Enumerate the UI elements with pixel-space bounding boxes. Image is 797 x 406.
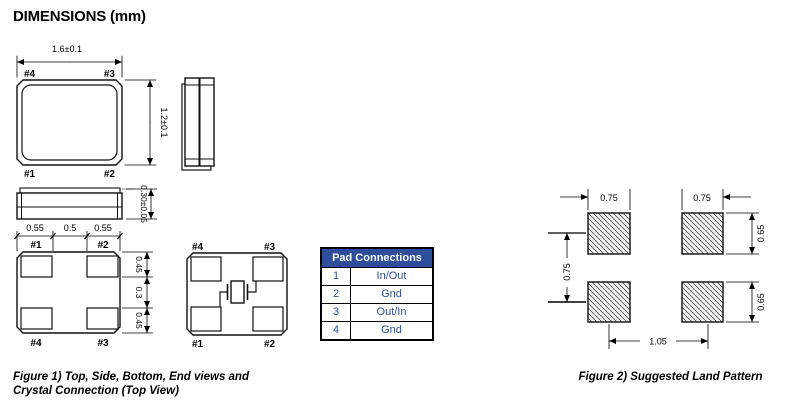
pad-connection-cell: Out/In: [351, 304, 432, 321]
bottom-view-pad2-label: #2: [97, 240, 109, 251]
table-row: 3 Out/In: [322, 303, 432, 321]
top-view-width-dim: 1.6±0.1: [52, 44, 82, 54]
land-pad-bottom-left: [588, 282, 630, 322]
bottom-view-dim-05: 0.5: [64, 223, 77, 233]
figure1-caption-line2: Crystal Connection (Top View): [13, 385, 249, 399]
bottom-view-dim-055-left: 0.55: [26, 223, 44, 233]
pad-connection-cell: Gnd: [351, 322, 432, 339]
land-dim-pad-height-top: 0.65: [756, 225, 766, 243]
bottom-view-pad4-label: #4: [30, 338, 42, 349]
top-view-pad2-label: #2: [104, 169, 116, 180]
figure2-caption: Figure 2) Suggested Land Pattern: [548, 371, 793, 385]
bottom-view-pad1-label: #1: [30, 240, 42, 251]
pad-number-cell: 3: [322, 304, 351, 321]
pad-number-cell: 2: [322, 286, 351, 303]
side-view: 0.30±0.05: [17, 185, 157, 223]
top-view-height-dim: 1.2±0.1: [159, 108, 169, 138]
crystal-view-pad4-label: #4: [192, 242, 204, 253]
pad-number-cell: 4: [322, 322, 351, 339]
pad-number-cell: 1: [322, 268, 351, 285]
land-pad-top-right: [682, 213, 723, 254]
top-view-pad1-label: #1: [24, 169, 36, 180]
land-dim-vertical-pitch: 0.75: [562, 263, 572, 281]
crystal-view-pad1-label: #1: [192, 339, 204, 350]
top-view-pad3-label: #3: [104, 69, 116, 80]
land-dim-horizontal-pitch: 1.05: [649, 337, 667, 347]
pad-connections-table: Pad Connections 1 In/Out 2 Gnd 3 Out/In …: [320, 247, 434, 341]
land-pad-top-left: [588, 213, 630, 254]
figure1-caption-line1: Figure 1) Top, Side, Bottom, End views a…: [13, 371, 249, 385]
crystal-view-pad2-label: #2: [264, 339, 276, 350]
land-pad-bottom-right: [682, 282, 723, 322]
table-row: 1 In/Out: [322, 267, 432, 285]
dimensions-drawing: 1.6±0.1 #4 #3 #1 #2 1.2±0.1: [0, 0, 797, 406]
bottom-view-dim-055-right: 0.55: [94, 223, 112, 233]
land-dim-pad-width-right: 0.75: [693, 193, 711, 203]
bottom-view-dim-045-bottom: 0.45: [134, 312, 144, 329]
land-dim-pad-width-left: 0.75: [600, 193, 618, 203]
land-dim-pad-height-bottom: 0.65: [756, 293, 766, 311]
bottom-view-dim-045-top: 0.45: [134, 256, 144, 273]
bottom-view: 0.55 0.5 0.55 #1 #2 #4 #3: [15, 223, 154, 349]
pad-connection-cell: In/Out: [351, 268, 432, 285]
table-row: 2 Gnd: [322, 285, 432, 303]
side-view-height-dim: 0.30±0.05: [139, 185, 149, 223]
pad-connections-header: Pad Connections: [322, 249, 432, 267]
top-view-pad4-label: #4: [24, 69, 36, 80]
pad-connection-cell: Gnd: [351, 286, 432, 303]
land-pattern: 0.75 0.75 0.65 0.65 0.75: [548, 189, 766, 349]
dimensions-page: DIMENSIONS (mm) 1.6±0.1 #4 #3 #1: [0, 0, 797, 406]
top-view: 1.6±0.1 #4 #3 #1 #2 1.2±0.1: [17, 44, 169, 180]
bottom-view-pad3-label: #3: [97, 338, 109, 349]
crystal-view-pad3-label: #3: [264, 242, 276, 253]
end-view: [182, 78, 214, 170]
bottom-view-dim-03: 0.3: [134, 287, 144, 299]
table-row: 4 Gnd: [322, 321, 432, 339]
figure1-caption: Figure 1) Top, Side, Bottom, End views a…: [13, 371, 249, 398]
crystal-connection-view: #4 #3 #1 #2: [187, 242, 287, 350]
